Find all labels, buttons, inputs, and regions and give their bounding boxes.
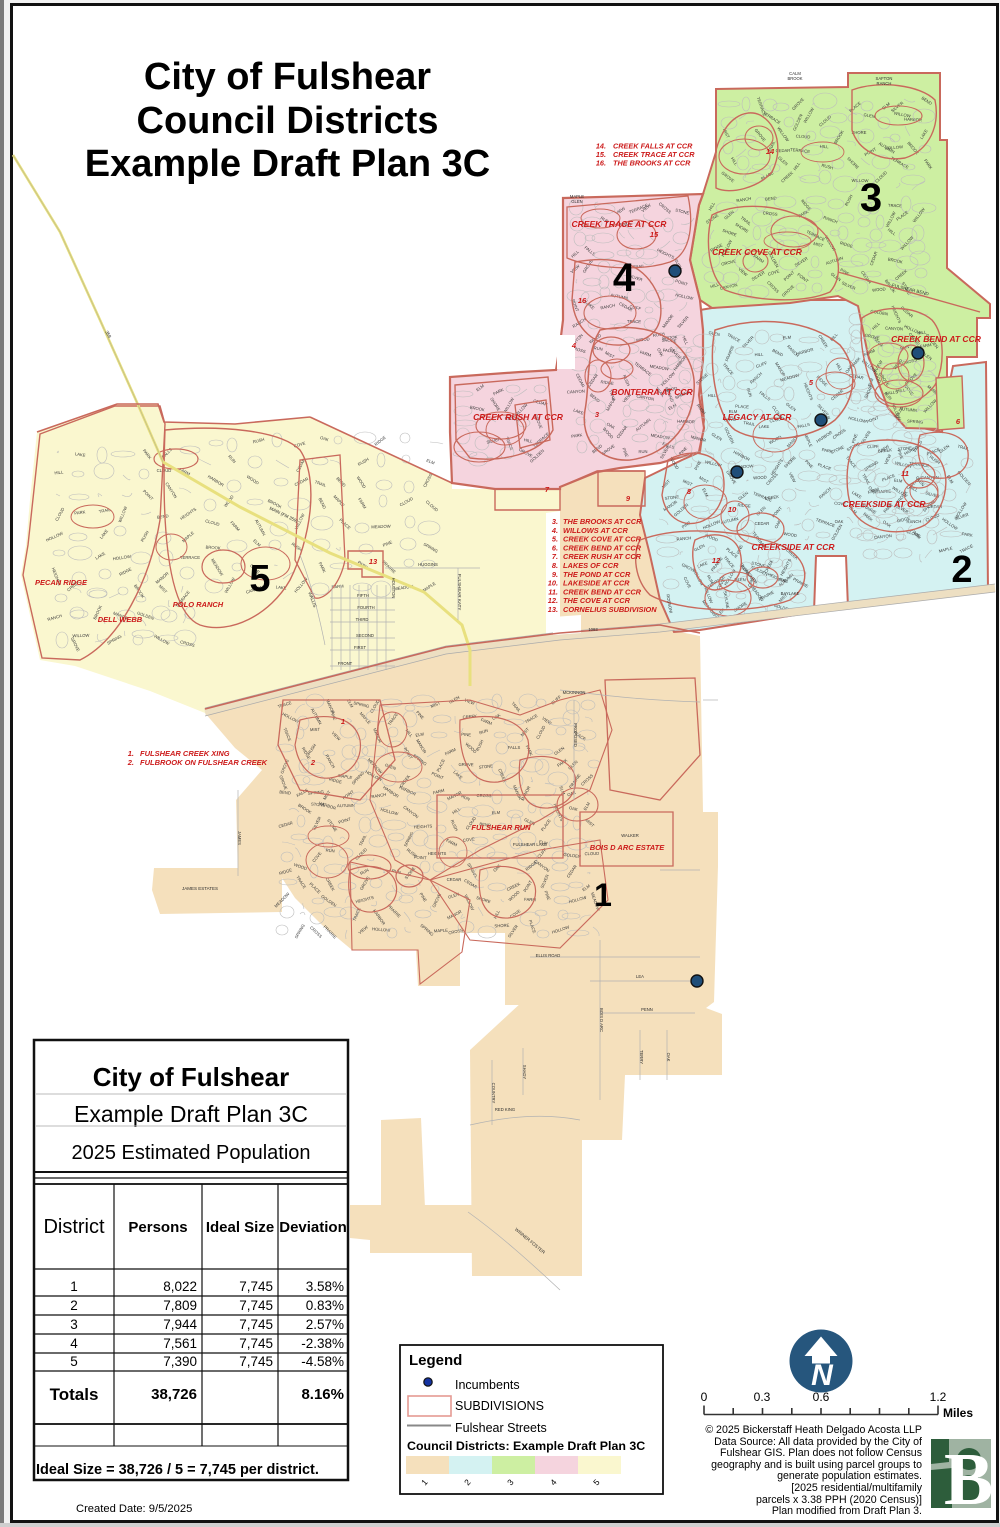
svg-text:5: 5 <box>70 1354 78 1369</box>
svg-text:FULSHEAR LAKE: FULSHEAR LAKE <box>513 842 547 847</box>
svg-text:CREEK BEND AT CCR: CREEK BEND AT CCR <box>563 543 642 552</box>
svg-text:7,809: 7,809 <box>163 1298 197 1313</box>
svg-text:THIRD: THIRD <box>356 617 369 622</box>
svg-text:3.: 3. <box>552 517 558 526</box>
svg-text:7,944: 7,944 <box>163 1317 197 1332</box>
svg-text:2: 2 <box>951 549 972 591</box>
svg-text:2: 2 <box>70 1298 78 1313</box>
svg-text:Deviation: Deviation <box>279 1219 347 1236</box>
svg-text:-4.58%: -4.58% <box>301 1354 344 1369</box>
svg-text:4.: 4. <box>551 526 558 535</box>
svg-text:1: 1 <box>341 717 345 726</box>
svg-text:7.: 7. <box>552 552 558 561</box>
svg-text:JAMES ESTATES: JAMES ESTATES <box>182 886 218 891</box>
svg-text:BOIS D ARC: BOIS D ARC <box>599 1008 604 1032</box>
svg-text:FULSHEAR RUN: FULSHEAR RUN <box>471 823 531 832</box>
svg-text:[2025 residential/multifamily: [2025 residential/multifamily <box>791 1482 922 1494</box>
svg-text:FIFTH: FIFTH <box>357 593 369 598</box>
svg-text:BAYLAKE: BAYLAKE <box>781 591 800 596</box>
svg-text:OAK: OAK <box>666 1053 671 1062</box>
svg-text:PENN: PENN <box>641 1007 653 1012</box>
svg-text:8,022: 8,022 <box>163 1279 197 1294</box>
svg-text:11.: 11. <box>548 587 558 596</box>
svg-text:PECAN RIDGE: PECAN RIDGE <box>35 578 88 587</box>
svg-text:CREEK TRACE AT CCR: CREEK TRACE AT CCR <box>572 219 668 229</box>
svg-text:1.2: 1.2 <box>930 1390 947 1404</box>
svg-text:15: 15 <box>650 230 659 239</box>
svg-text:RANCH: RANCH <box>906 519 921 524</box>
svg-text:AUTUMN: AUTUMN <box>337 803 355 808</box>
svg-text:7,390: 7,390 <box>163 1354 197 1369</box>
svg-text:13: 13 <box>369 557 378 566</box>
svg-text:FALLS: FALLS <box>663 348 676 354</box>
svg-text:9.: 9. <box>552 570 558 579</box>
svg-text:10: 10 <box>728 505 737 514</box>
svg-text:generate population estimates.: generate population estimates. <box>777 1470 922 1482</box>
svg-text:0.83%: 0.83% <box>306 1298 344 1313</box>
svg-text:Incumbents: Incumbents <box>455 1378 520 1392</box>
svg-text:CANYON: CANYON <box>885 326 903 332</box>
svg-text:THE BROOKS AT CCR: THE BROOKS AT CCR <box>613 158 691 167</box>
svg-text:THE BROOKS AT CCR: THE BROOKS AT CCR <box>563 517 642 526</box>
svg-text:CREEK COVE AT CCR: CREEK COVE AT CCR <box>563 535 642 544</box>
svg-text:LEA: LEA <box>636 974 644 979</box>
svg-text:5: 5 <box>249 558 270 600</box>
svg-text:Example Draft Plan 3C: Example Draft Plan 3C <box>74 1101 308 1127</box>
svg-text:8.: 8. <box>552 561 558 570</box>
svg-text:10.: 10. <box>548 579 558 588</box>
svg-text:LAKES OF CCR: LAKES OF CCR <box>563 561 619 570</box>
svg-text:POINT: POINT <box>414 855 428 861</box>
svg-text:POLO RANCH: POLO RANCH <box>173 600 224 609</box>
svg-text:CREEKSIDE AT CCR: CREEKSIDE AT CCR <box>842 499 926 509</box>
svg-text:4: 4 <box>613 256 636 300</box>
svg-text:CLOUD: CLOUD <box>796 133 811 139</box>
svg-text:HILL: HILL <box>754 352 764 357</box>
svg-text:THE COVE AT CCR: THE COVE AT CCR <box>563 596 631 605</box>
svg-text:7,745: 7,745 <box>239 1317 273 1332</box>
svg-text:RED KING: RED KING <box>495 1107 515 1112</box>
svg-text:PLACE: PLACE <box>735 404 749 410</box>
svg-text:7,745: 7,745 <box>239 1279 273 1294</box>
svg-text:HEIGHTS: HEIGHTS <box>413 824 432 830</box>
svg-text:HOUSTON: HOUSTON <box>391 578 396 599</box>
svg-text:FIRST: FIRST <box>354 645 367 650</box>
svg-text:MCKINNON: MCKINNON <box>563 690 586 695</box>
svg-text:CREEK COVE AT CCR: CREEK COVE AT CCR <box>712 247 803 257</box>
svg-text:JAMES: JAMES <box>237 831 242 845</box>
svg-text:Created Date: 9/5/2025: Created Date: 9/5/2025 <box>76 1503 192 1515</box>
svg-text:-2.38%: -2.38% <box>301 1336 344 1351</box>
svg-text:FALLS: FALLS <box>508 745 521 750</box>
svg-text:MAPLE: MAPLE <box>434 928 449 934</box>
svg-text:BROOK: BROOK <box>787 76 802 81</box>
svg-text:Legend: Legend <box>409 1352 462 1369</box>
svg-text:4: 4 <box>571 341 577 350</box>
svg-text:LAKE: LAKE <box>759 424 770 429</box>
svg-text:Ideal Size = 38,726 / 5 = 7,74: Ideal Size = 38,726 / 5 = 7,745 per dist… <box>36 1462 319 1478</box>
svg-text:PROPOSED: PROPOSED <box>573 723 578 747</box>
svg-text:CORNELIUS SUBDIVISION: CORNELIUS SUBDIVISION <box>563 605 657 614</box>
svg-text:CREEK BEND AT CCR: CREEK BEND AT CCR <box>891 334 982 344</box>
svg-text:2.: 2. <box>127 758 134 767</box>
svg-text:LEGACY AT CCR: LEGACY AT CCR <box>723 412 793 422</box>
svg-text:13.: 13. <box>548 605 558 614</box>
svg-text:GLEN: GLEN <box>571 199 582 204</box>
svg-text:TERRY: TERRY <box>639 1050 644 1064</box>
svg-text:RANCH: RANCH <box>877 81 892 86</box>
svg-text:FRONT: FRONT <box>338 661 353 666</box>
svg-text:PINE: PINE <box>461 732 471 738</box>
svg-text:CREEK BEND AT CCR: CREEK BEND AT CCR <box>563 587 642 596</box>
svg-text:District: District <box>43 1216 105 1238</box>
svg-text:BONTERRA AT CCR: BONTERRA AT CCR <box>611 387 693 397</box>
svg-text:Plan modified from Draft Plan: Plan modified from Draft Plan 3. <box>772 1505 922 1517</box>
svg-text:HILL: HILL <box>820 144 830 149</box>
svg-text:OAK: OAK <box>835 519 844 524</box>
svg-text:CEDAR: CEDAR <box>755 521 770 526</box>
svg-text:7,745: 7,745 <box>239 1298 273 1313</box>
svg-text:7,745: 7,745 <box>239 1354 273 1369</box>
svg-text:0.3: 0.3 <box>754 1390 771 1404</box>
svg-text:RUN: RUN <box>638 449 647 454</box>
svg-text:ELLIS ROAD: ELLIS ROAD <box>536 953 561 958</box>
svg-text:12: 12 <box>712 556 721 565</box>
svg-text:12.: 12. <box>548 596 558 605</box>
svg-text:THE POND AT CCR: THE POND AT CCR <box>563 570 631 579</box>
svg-text:SPRING: SPRING <box>294 923 306 939</box>
svg-text:City of Fulshear: City of Fulshear <box>93 1062 289 1092</box>
svg-text:LAKESIDE AT CCR: LAKESIDE AT CCR <box>563 579 630 588</box>
svg-text:FOURTH: FOURTH <box>357 605 374 610</box>
svg-text:CEDAR: CEDAR <box>447 877 462 882</box>
svg-text:1: 1 <box>594 877 612 913</box>
svg-text:3: 3 <box>70 1317 78 1332</box>
svg-text:BROOK: BROOK <box>205 544 221 550</box>
svg-text:WILLOWS AT CCR: WILLOWS AT CCR <box>563 526 629 535</box>
svg-text:1093: 1093 <box>588 627 598 632</box>
svg-text:0: 0 <box>701 1390 708 1404</box>
svg-text:Miles: Miles <box>943 1406 973 1420</box>
svg-text:3: 3 <box>860 176 882 220</box>
svg-text:SHADY: SHADY <box>522 1065 527 1080</box>
svg-text:CREEK RUSH AT CCR: CREEK RUSH AT CCR <box>563 552 642 561</box>
svg-text:38,726: 38,726 <box>151 1386 197 1403</box>
svg-text:1.: 1. <box>128 749 134 758</box>
svg-text:ELM: ELM <box>491 810 500 815</box>
svg-text:CREEKSIDE AT CCR: CREEKSIDE AT CCR <box>751 542 835 552</box>
svg-text:FULSHEAR CREEK XING: FULSHEAR CREEK XING <box>140 749 230 758</box>
svg-text:2025 Estimated Population: 2025 Estimated Population <box>71 1142 310 1164</box>
svg-text:WALKER: WALKER <box>621 833 639 838</box>
svg-text:HUGGINS: HUGGINS <box>418 562 438 567</box>
svg-text:Ideal Size: Ideal Size <box>206 1219 274 1236</box>
svg-text:2: 2 <box>310 758 316 767</box>
svg-text:© 2025 Bickerstaff Heath Delga: © 2025 Bickerstaff Heath Delgado Acosta … <box>705 1424 922 1436</box>
svg-text:ELM: ELM <box>426 458 436 466</box>
svg-text:Council Districts: Example Dra: Council Districts: Example Draft Plan 3C <box>407 1439 645 1453</box>
svg-text:CROSS: CROSS <box>309 925 323 939</box>
svg-text:SECOND: SECOND <box>356 633 374 638</box>
svg-text:0.6: 0.6 <box>813 1390 830 1404</box>
svg-text:CLIFF: CLIFF <box>867 444 879 450</box>
svg-text:3.58%: 3.58% <box>306 1279 344 1294</box>
svg-text:COUNTRY: COUNTRY <box>491 1083 496 1104</box>
svg-text:Persons: Persons <box>128 1219 187 1236</box>
svg-text:MIST: MIST <box>310 727 321 732</box>
svg-text:TRACE: TRACE <box>888 203 903 208</box>
svg-text:6.: 6. <box>552 543 558 552</box>
svg-text:16.: 16. <box>596 158 606 167</box>
svg-text:Fulshear Streets: Fulshear Streets <box>455 1421 547 1435</box>
svg-text:1: 1 <box>70 1279 78 1294</box>
svg-text:N: N <box>811 1359 834 1392</box>
svg-text:Totals: Totals <box>50 1385 99 1404</box>
svg-text:7,745: 7,745 <box>239 1336 273 1351</box>
svg-text:2.57%: 2.57% <box>306 1317 344 1332</box>
svg-text:4: 4 <box>70 1336 78 1351</box>
svg-text:SUBDIVISIONS: SUBDIVISIONS <box>455 1399 544 1413</box>
svg-text:14: 14 <box>766 147 775 156</box>
svg-text:CREEK RUSH AT CCR: CREEK RUSH AT CCR <box>473 412 564 422</box>
svg-text:ELM: ELM <box>782 335 792 341</box>
svg-text:DELL WEBB: DELL WEBB <box>98 615 143 624</box>
svg-text:B: B <box>944 1439 993 1521</box>
svg-text:16: 16 <box>578 296 587 305</box>
svg-text:BOIS D ARC ESTATE: BOIS D ARC ESTATE <box>590 843 665 852</box>
svg-text:7,561: 7,561 <box>163 1336 197 1351</box>
svg-text:5.: 5. <box>552 535 558 544</box>
svg-text:11: 11 <box>901 469 909 478</box>
svg-text:FULSHEAR KATY: FULSHEAR KATY <box>457 574 462 611</box>
svg-text:SHORE: SHORE <box>494 923 509 929</box>
svg-text:WOOD: WOOD <box>753 475 767 481</box>
svg-text:Fulshear GIS. Plan does not f: Fulshear GIS. Plan does not follow Censu… <box>720 1447 922 1459</box>
svg-text:FULBROOK ON FULSHEAR CREEK: FULBROOK ON FULSHEAR CREEK <box>140 758 268 767</box>
svg-text:8.16%: 8.16% <box>301 1386 344 1403</box>
svg-text:MEADOW: MEADOW <box>371 524 391 530</box>
